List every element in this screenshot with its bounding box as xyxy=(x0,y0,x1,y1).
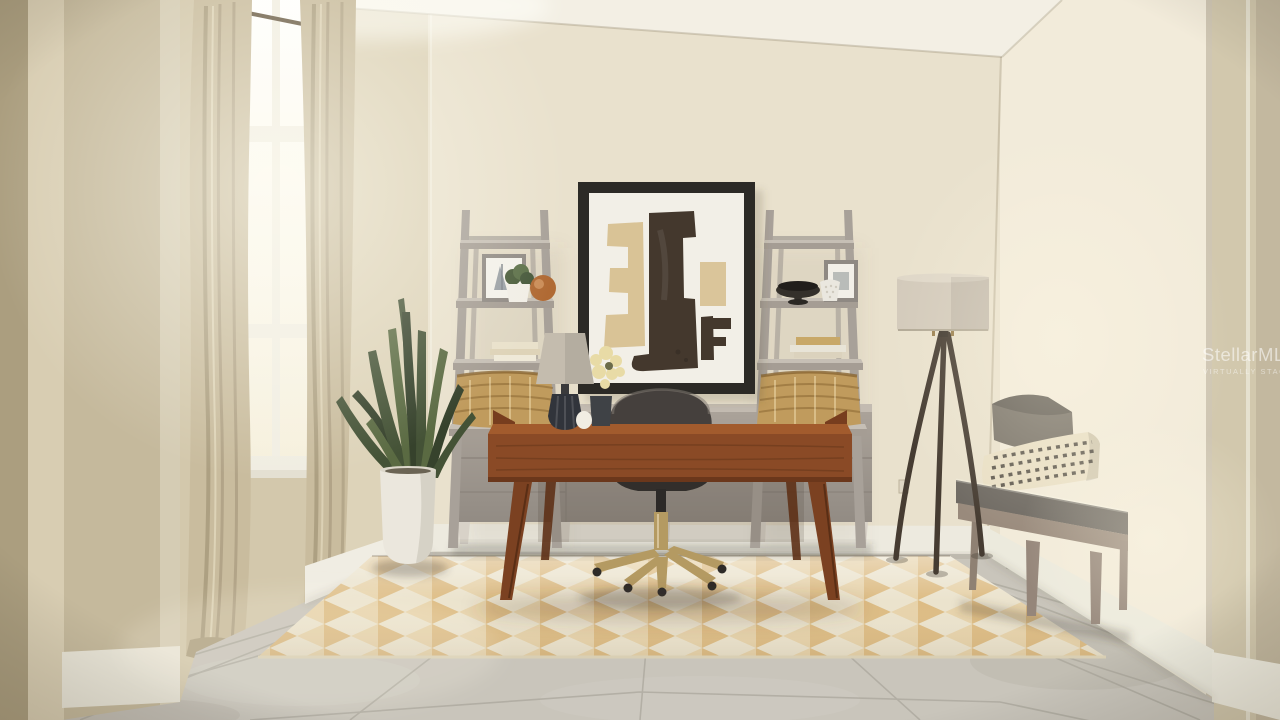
watermark-tagline: VIRTUALLY STAGED xyxy=(1203,367,1280,376)
watermark-brand: StellarMLS xyxy=(1202,344,1280,365)
watermark: StellarMLS VIRTUALLY STAGED xyxy=(1202,344,1280,376)
room-scene: StellarMLS VIRTUALLY STAGED xyxy=(0,0,1280,720)
staged-room-photo: StellarMLS VIRTUALLY STAGED xyxy=(0,0,1280,720)
vignette xyxy=(0,0,1280,720)
light-overlays xyxy=(0,0,1280,720)
